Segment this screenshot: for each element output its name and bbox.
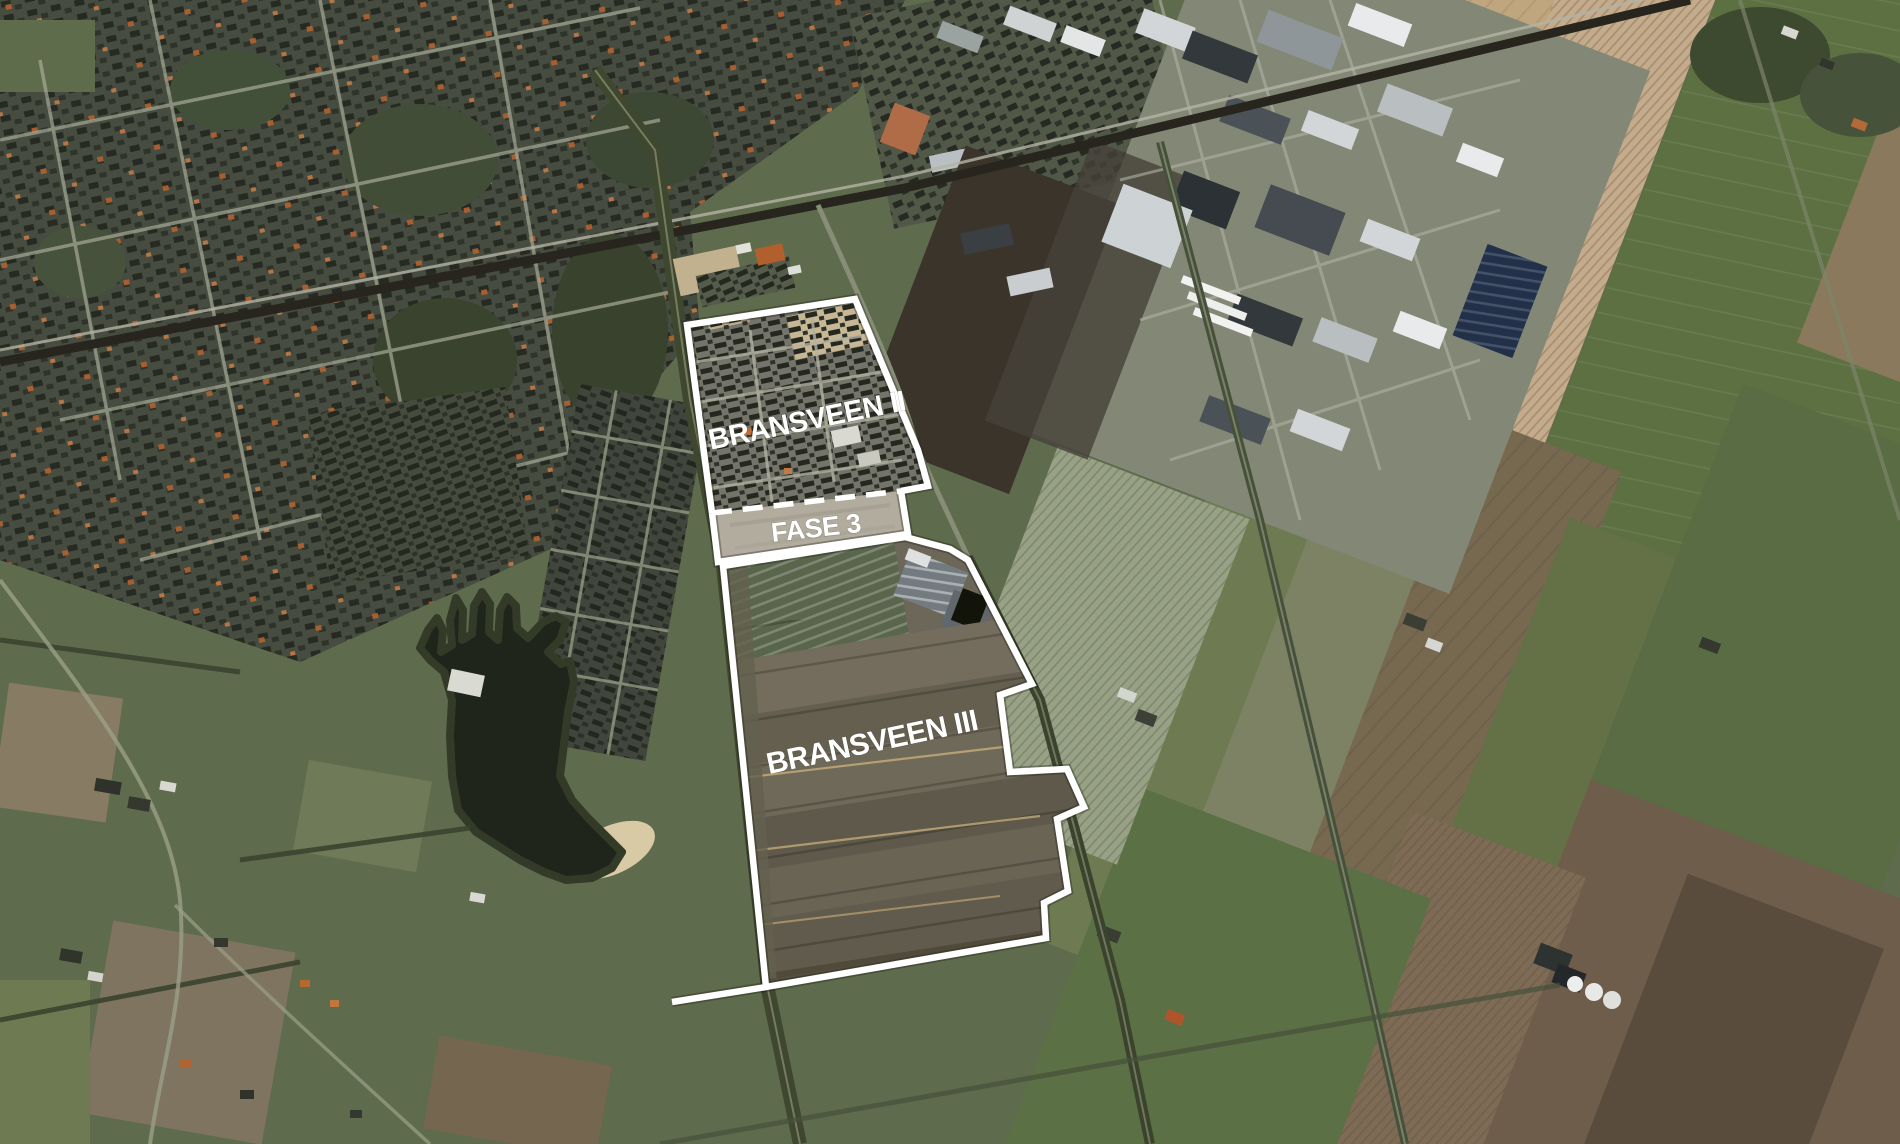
satellite-map-view[interactable]: BRANSVEEN II FASE 3 BRANSVEEN III [0,0,1900,1144]
satellite-canvas: BRANSVEEN II FASE 3 BRANSVEEN III [0,0,1900,1144]
